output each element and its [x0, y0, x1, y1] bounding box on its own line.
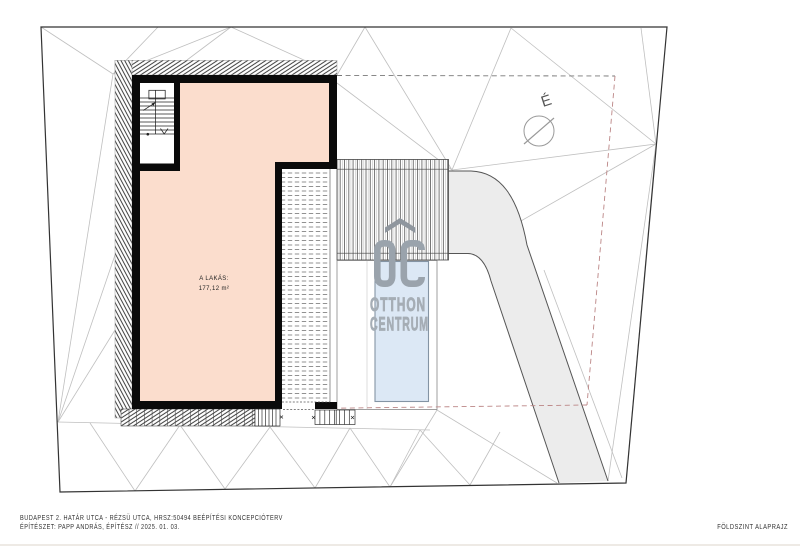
svg-text:OTTHON: OTTHON: [370, 295, 426, 315]
svg-text:FÖLDSZINT ALAPRAJZ: FÖLDSZINT ALAPRAJZ: [717, 522, 788, 531]
svg-text:ÉPÍTÉSZET: PAPP ANDRÁS, ÉPÍTÉS: ÉPÍTÉSZET: PAPP ANDRÁS, ÉPÍTÉSZ // 2025.…: [20, 521, 180, 531]
svg-text:177,12 m²: 177,12 m²: [199, 286, 230, 292]
svg-text:A LAKÁS:: A LAKÁS:: [199, 275, 229, 282]
svg-text:BUDAPEST 2. HATÁR UTCA - RÉZSÜ: BUDAPEST 2. HATÁR UTCA - RÉZSÜ UTCA, HRS…: [20, 512, 283, 522]
svg-text:CENTRUM: CENTRUM: [370, 314, 429, 335]
